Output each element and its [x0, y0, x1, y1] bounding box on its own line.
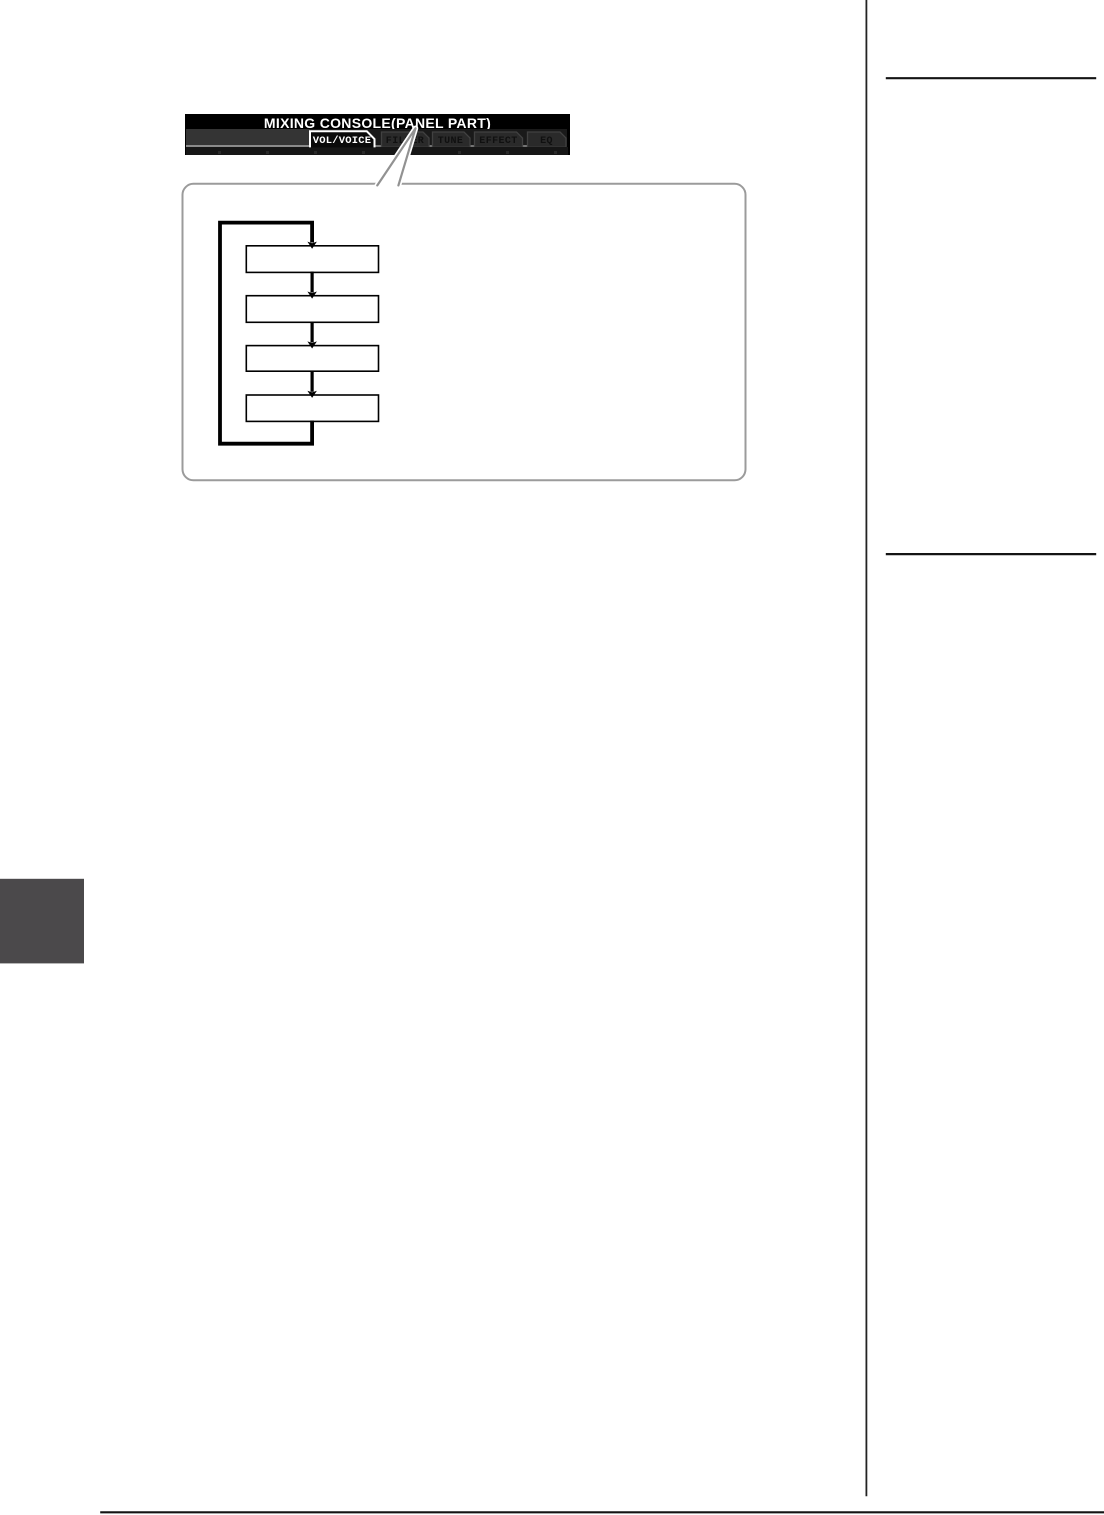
- svg-text:EFFECT: EFFECT: [479, 136, 517, 147]
- svg-text:VOL/VOICE: VOL/VOICE: [313, 135, 372, 147]
- svg-text:TUNE: TUNE: [438, 136, 464, 147]
- svg-text:EQ: EQ: [540, 136, 553, 147]
